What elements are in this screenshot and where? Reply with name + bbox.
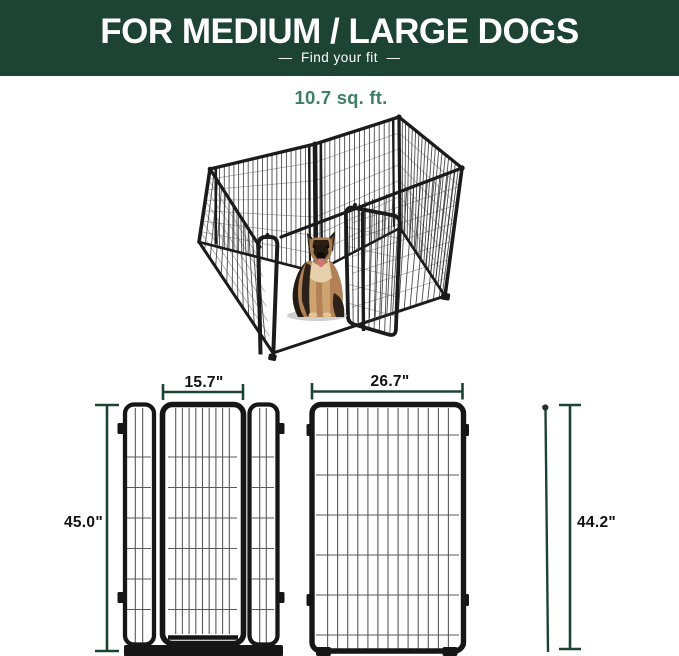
svg-text:26.7": 26.7"	[370, 373, 409, 390]
svg-text:15.7": 15.7"	[184, 374, 223, 391]
svg-text:44.2": 44.2"	[577, 514, 616, 531]
svg-text:10.7 sq. ft.: 10.7 sq. ft.	[295, 87, 388, 108]
svg-text:45.0": 45.0"	[64, 514, 103, 531]
